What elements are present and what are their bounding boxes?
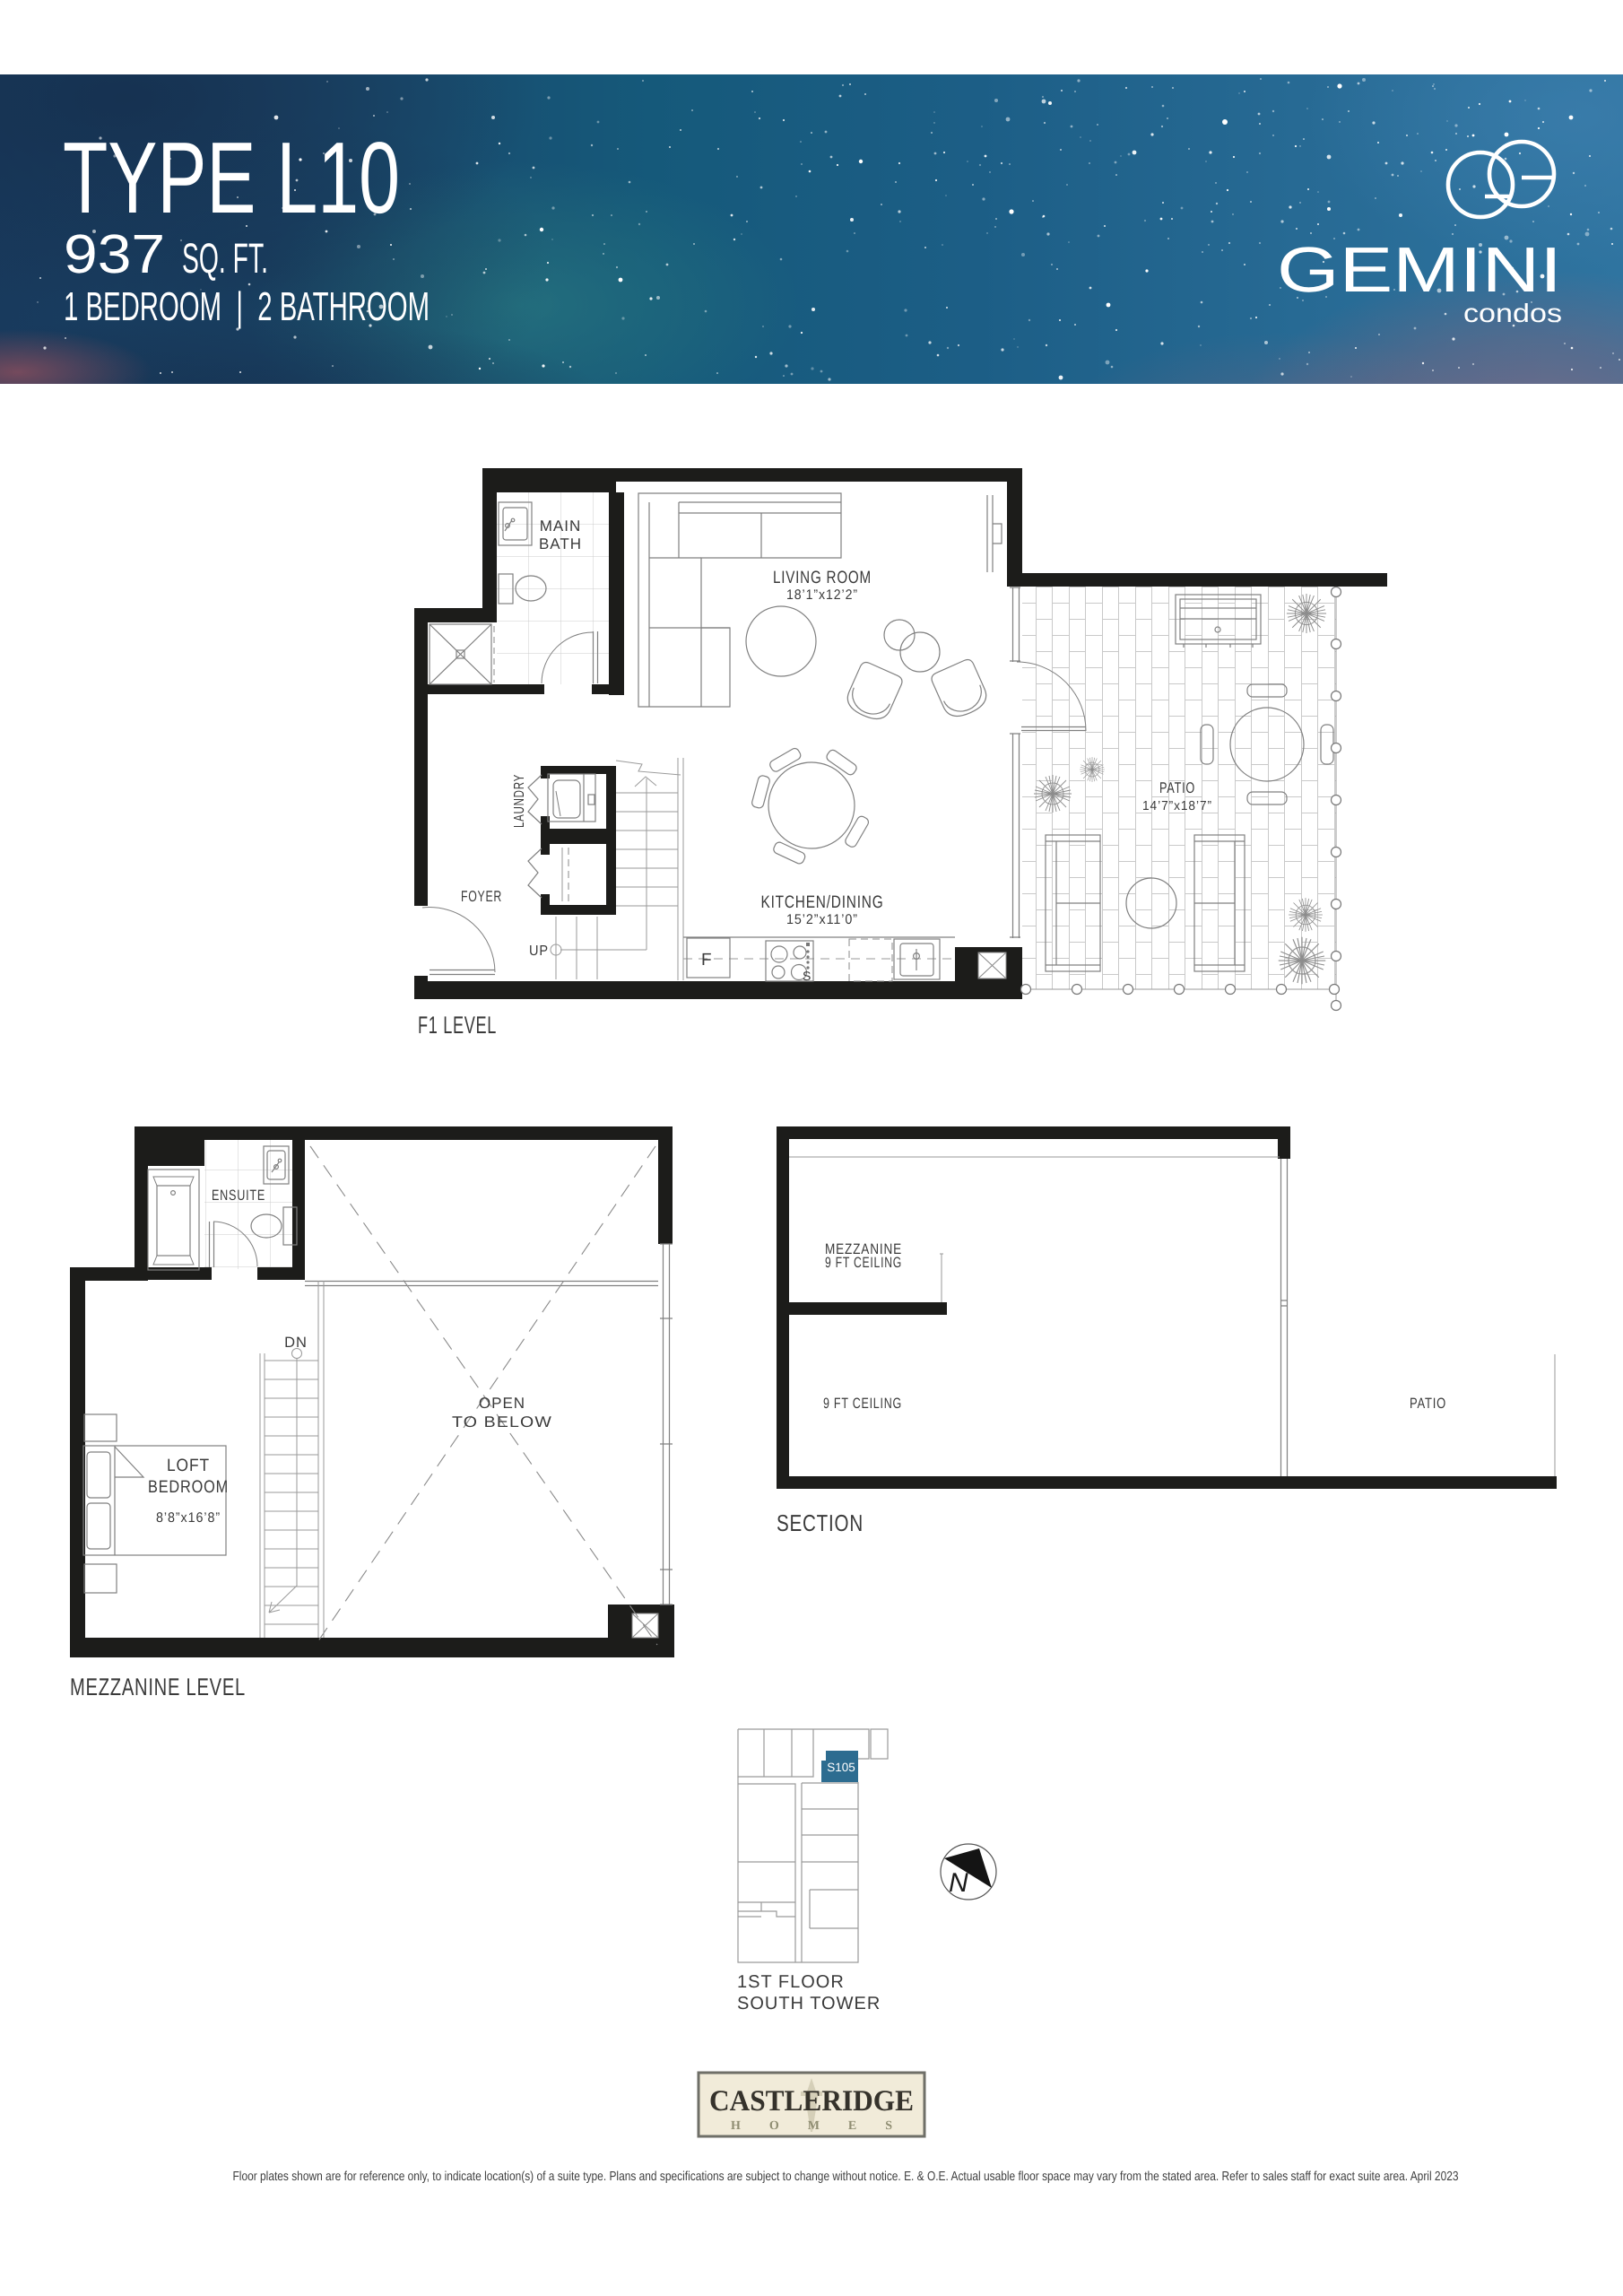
- svg-text:OPEN: OPEN: [479, 1395, 525, 1412]
- svg-text:SECTION: SECTION: [777, 1509, 864, 1536]
- svg-text:9 FT CEILING: 9 FT CEILING: [823, 1396, 902, 1412]
- svg-text:S: S: [803, 969, 811, 983]
- svg-text:F1 LEVEL: F1 LEVEL: [418, 1012, 497, 1039]
- svg-text:TO BELOW: TO BELOW: [452, 1413, 552, 1431]
- svg-text:1ST FLOOR: 1ST FLOOR: [737, 1972, 845, 1992]
- svg-text:MAIN: MAIN: [540, 517, 582, 535]
- svg-text:FOYER: FOYER: [461, 888, 502, 905]
- svg-text:8’8”x16’8”: 8’8”x16’8”: [156, 1510, 221, 1526]
- svg-text:condos: condos: [1463, 300, 1562, 328]
- svg-text:S105: S105: [827, 1761, 855, 1774]
- svg-text:15’2”x11’0”: 15’2”x11’0”: [786, 912, 858, 927]
- svg-text:TYPE L10: TYPE L10: [63, 121, 400, 234]
- svg-text:LOFT: LOFT: [167, 1456, 210, 1475]
- svg-text:UP: UP: [529, 944, 549, 959]
- svg-text:Floor plates shown are for ref: Floor plates shown are for reference onl…: [233, 2170, 1459, 2184]
- svg-text:9 FT CEILING: 9 FT CEILING: [825, 1255, 902, 1271]
- svg-text:KITCHEN/DINING: KITCHEN/DINING: [761, 892, 884, 912]
- svg-text:14’7”x18’7”: 14’7”x18’7”: [1142, 799, 1212, 813]
- svg-text:F: F: [701, 951, 713, 970]
- svg-text:BATH: BATH: [539, 535, 582, 552]
- svg-text:1 BEDROOM | 2 BATHROOM: 1 BEDROOM | 2 BATHROOM: [64, 283, 430, 329]
- svg-text:PATIO: PATIO: [1410, 1396, 1446, 1412]
- svg-text:N: N: [949, 1868, 968, 1898]
- svg-text:ENSUITE: ENSUITE: [212, 1187, 265, 1204]
- svg-text:DN: DN: [284, 1335, 308, 1351]
- svg-text:LAUNDRY: LAUNDRY: [512, 774, 527, 828]
- svg-text:LIVING ROOM: LIVING ROOM: [773, 568, 872, 587]
- svg-text:SOUTH TOWER: SOUTH TOWER: [737, 1994, 881, 2013]
- svg-text:18’1”x12’2”: 18’1”x12’2”: [786, 587, 858, 603]
- svg-text:MEZZANINE LEVEL: MEZZANINE LEVEL: [70, 1674, 246, 1700]
- svg-text:GEMINI: GEMINI: [1277, 235, 1562, 306]
- svg-text:CASTLERIDGE: CASTLERIDGE: [709, 2085, 914, 2118]
- svg-text:BEDROOM: BEDROOM: [148, 1477, 229, 1497]
- svg-text:PATIO: PATIO: [1159, 779, 1195, 796]
